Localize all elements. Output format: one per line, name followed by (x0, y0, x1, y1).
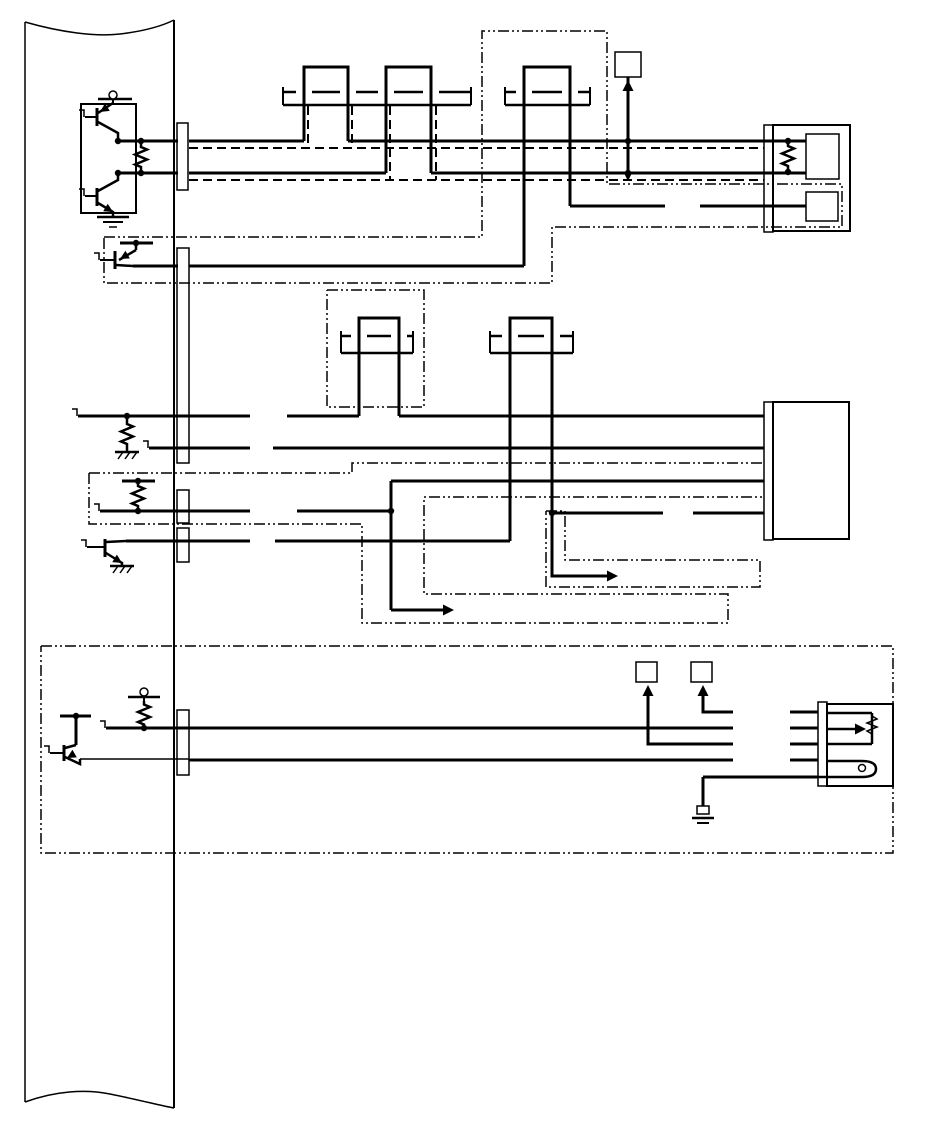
wiring-diagram-svg (0, 0, 950, 1125)
resistor-ecu (782, 140, 794, 172)
check-square-3 (691, 662, 712, 682)
offpage-branch-576 (552, 513, 608, 576)
junction-dot-6 (785, 138, 791, 144)
connector3-bridge (524, 67, 570, 92)
terminal-tick-547 (81, 540, 86, 547)
transistor1-collector (98, 122, 118, 141)
junction-dot-4 (625, 138, 631, 144)
terminal-tick-448 (143, 441, 148, 448)
connector-bracket-1 (177, 123, 188, 190)
transistor3-collector (116, 265, 133, 266)
connector-bracket-4 (177, 490, 189, 523)
connector4-bridge (359, 318, 399, 336)
transistor4-collector (65, 745, 76, 748)
connector-bracket-6 (764, 402, 773, 540)
module-box-mid-right (773, 402, 849, 539)
junction-dot-1 (115, 170, 121, 176)
connector-bracket-5 (177, 528, 189, 562)
resistor-pullup-416 (121, 416, 133, 452)
sensor-hook (859, 765, 866, 772)
harness-band-bottom-torn-edge (25, 1091, 174, 1108)
terminal-tick-753 (44, 746, 49, 753)
junction-dot-3 (138, 170, 144, 176)
transistor2-collector (98, 173, 118, 191)
junction-dot-7 (785, 169, 791, 175)
arrow-right-sensor-wiper (855, 724, 866, 735)
shield-envelope-top (104, 31, 842, 283)
square3-drop (703, 694, 733, 712)
connector1-bridge (304, 67, 348, 92)
connector5-bridge (510, 318, 552, 336)
transistor5-collector (106, 541, 126, 542)
harness-band-top-torn-edge (25, 20, 174, 35)
wiring-diagram-page (0, 0, 950, 1125)
transistor4-emitter (65, 757, 80, 764)
arrow-right-offpage-610 (443, 605, 454, 616)
power-terminal-top (109, 91, 117, 99)
shield-envelope-mid-upper (89, 463, 764, 473)
junction-dot-0 (115, 138, 121, 144)
terminal-tick-728 (100, 721, 105, 728)
power-terminal-bottom (140, 688, 148, 696)
arrow-up-check-square-1 (623, 80, 634, 91)
junction-dot-13 (133, 240, 139, 246)
bottom-system-box (41, 646, 893, 853)
junction-dot-12 (549, 510, 555, 516)
check-square-1 (615, 52, 641, 77)
square2-drop (648, 694, 733, 744)
arrow-up-check-square-3 (698, 685, 709, 696)
shield-envelope-mid-lower (89, 473, 764, 623)
junction-dot-10 (135, 508, 141, 514)
junction-dot-8 (124, 413, 130, 419)
arrow-right-offpage-576 (607, 571, 618, 582)
ecu-inner-square-1 (806, 134, 839, 179)
junction-dot-2 (138, 138, 144, 144)
connector-bracket-8 (818, 702, 827, 786)
check-square-2 (636, 662, 657, 682)
arrow-up-check-square-2 (643, 685, 654, 696)
terminal-tick-260 (94, 253, 99, 260)
connector2-bridge (386, 67, 431, 92)
ecu-inner-square-2 (806, 192, 838, 221)
terminal-tick-416 (72, 409, 77, 416)
junction-dot-15 (141, 725, 147, 731)
ground-symbol-square (697, 806, 709, 814)
terminal-tick-511 (94, 504, 99, 511)
junction-dot-11 (388, 508, 394, 514)
connector-bracket-3 (177, 248, 189, 463)
junction-dot-9 (135, 478, 141, 484)
junction-dot-14 (73, 713, 79, 719)
connector-bracket-7 (177, 710, 189, 775)
resistor-shielded-481 (132, 481, 144, 511)
resistor-power-bottom (138, 701, 150, 728)
